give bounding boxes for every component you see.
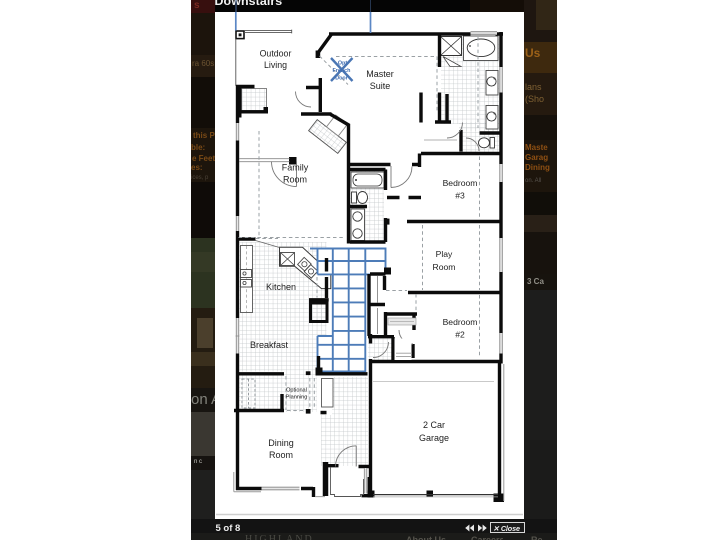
svg-text:Room: Room — [283, 175, 307, 185]
svg-text:Living: Living — [264, 60, 287, 70]
svg-text:Family: Family — [282, 163, 309, 173]
svg-text:Dining: Dining — [268, 438, 294, 448]
svg-text:Master: Master — [366, 69, 394, 79]
svg-text:2 Car: 2 Car — [423, 420, 445, 430]
svg-text:Bedroom: Bedroom — [443, 178, 478, 188]
svg-text:French: French — [333, 68, 351, 74]
svg-text:Room: Room — [433, 262, 456, 272]
svg-text:Door: Door — [335, 76, 348, 82]
svg-text:Outdoor: Outdoor — [260, 49, 292, 59]
svg-text:Breakfast: Breakfast — [250, 340, 289, 350]
svg-text:Play: Play — [436, 249, 453, 259]
svg-text:#3: #3 — [455, 191, 465, 201]
svg-text:Room: Room — [269, 450, 293, 460]
svg-text:Planning: Planning — [286, 395, 308, 401]
svg-text:Bedroom: Bedroom — [443, 317, 478, 327]
svg-text:Garage: Garage — [419, 433, 449, 443]
svg-text:Kitchen: Kitchen — [266, 282, 296, 292]
svg-text:Suite: Suite — [370, 81, 391, 91]
svg-text:#2: #2 — [455, 330, 465, 340]
svg-text:Opt: Opt — [338, 61, 347, 67]
svg-text:Optional: Optional — [286, 388, 307, 394]
